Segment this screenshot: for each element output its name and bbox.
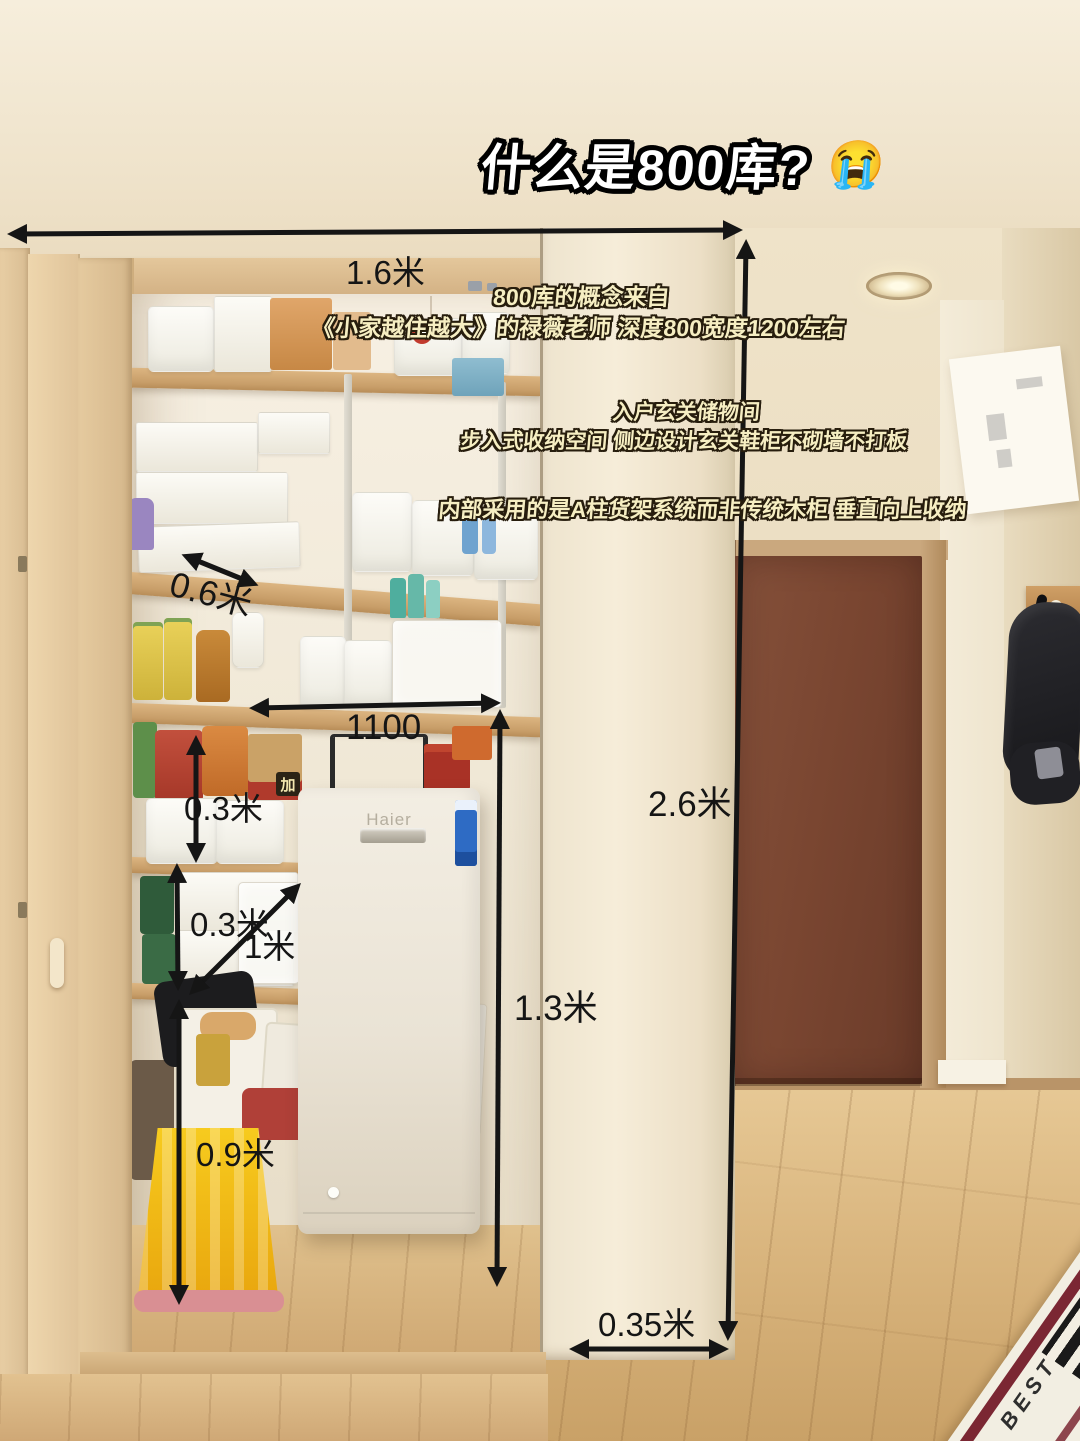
package-label-text: 加 [280,774,295,795]
note-system-line1: 内部采用的是A柱货架系统而非传统木柜 垂直向上收纳 [429,494,977,525]
teal-bottle [426,580,440,618]
poster-art [986,413,1007,441]
package-label: 加 [276,772,300,796]
measure-bottom-height: 0.9米 [196,1128,275,1176]
green-cans [142,934,176,984]
door-hinge [18,902,27,918]
canned-drinks [164,618,192,700]
note-origin-line1: 800库的概念来自 [300,282,863,313]
frosted-drawer [392,620,502,708]
white-box [137,521,301,573]
note-space-line2: 步入式收纳空间 侧边设计玄关鞋柜不砌墙不打板 [422,427,945,456]
snack-bag-green [133,722,157,798]
sauce-bottle [196,630,230,702]
stool-base [134,1290,284,1312]
foreground-floor [0,1374,548,1441]
storage-bin [352,492,412,572]
storage-bin [148,306,214,372]
recessed-ceiling-light [866,272,932,300]
poster-art [1016,376,1043,389]
fridge-handle [360,828,426,843]
entry-door [734,556,922,1084]
measure-diagonal: 1米 [244,920,295,968]
folding-door-panel [28,254,80,1378]
white-box [136,422,258,472]
door-bottom-shadow [734,1078,922,1086]
fridge-seam [303,1212,475,1214]
white-box [214,296,272,372]
baseboard [938,1060,1006,1084]
door-handle [50,938,64,988]
white-box [258,412,330,454]
note-system: 内部采用的是A柱货架系统而非传统木柜 垂直向上收纳 [429,494,977,525]
measure-pillar-width: 0.35米 [598,1298,695,1346]
page-title: 什么是800库? 😭 [445,128,921,200]
energy-label [455,800,477,866]
note-space: 入户玄关储物间 步入式收纳空间 侧边设计玄关鞋柜不砌墙不打板 [422,398,947,456]
storage-bin [344,640,392,708]
measure-right-height: 1.3米 [514,980,598,1031]
note-space-line1: 入户玄关储物间 [425,398,948,427]
fridge: Haier [298,788,480,1234]
gold-pouch [196,1034,230,1086]
measure-gap-upper: 0.3米 [184,782,263,830]
blue-box [452,358,504,396]
canned-drinks [133,622,163,700]
measure-wall-height: 2.6米 [648,776,732,827]
measure-inner-width: 1100 [346,708,421,748]
backpack-tag [1034,746,1064,779]
photo-canvas: 加 Haier [0,0,1080,1441]
teal-bottle [408,574,424,618]
folding-door-panel [78,258,132,1378]
poster-art [996,449,1012,469]
teal-bottle [390,578,406,618]
door-hinge [18,556,27,572]
crying-emoji: 😭 [825,137,887,192]
orange-canister [452,726,492,760]
green-cans [140,876,174,934]
wall-poster [949,346,1079,514]
door-frame-right [920,540,946,1088]
note-origin: 800库的概念来自 《小家越住越大》的禄薇老师 深度800宽度1200左右 [297,282,862,344]
white-box [136,472,288,524]
fridge-brand-logo: Haier [298,810,480,830]
storage-bin [300,636,346,708]
folding-door-edge [0,248,30,1380]
note-origin-line2: 《小家越住越大》的禄薇老师 深度800宽度1200左右 [297,313,860,344]
title-text: 什么是800库? [478,128,814,200]
fridge-badge-dot [328,1187,339,1198]
